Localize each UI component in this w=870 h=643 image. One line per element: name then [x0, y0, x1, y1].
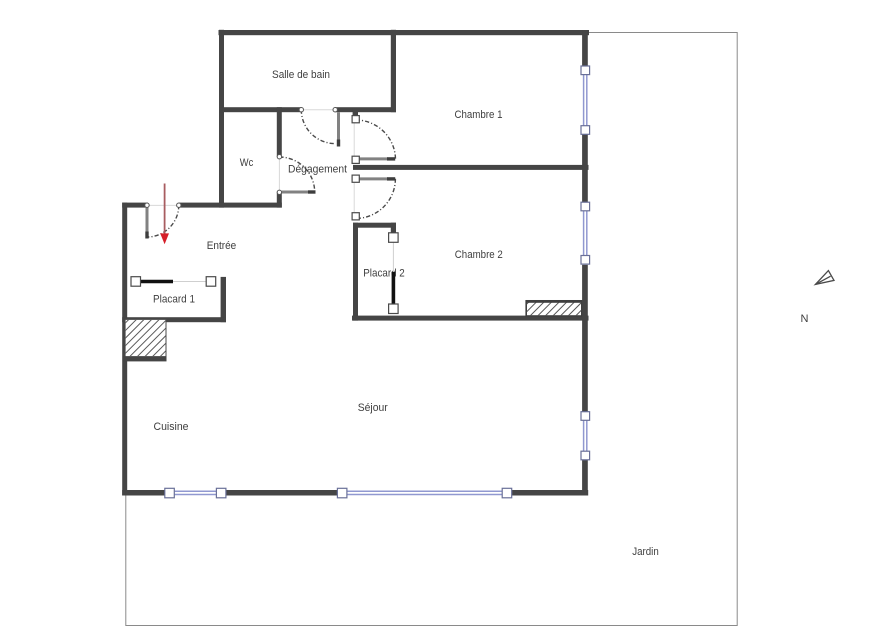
svg-text:Placard 1: Placard 1	[153, 294, 195, 306]
svg-text:N: N	[801, 313, 809, 325]
svg-text:Cuisine: Cuisine	[154, 421, 189, 433]
svg-text:Jardin: Jardin	[632, 546, 659, 558]
svg-text:Salle de bain: Salle de bain	[272, 69, 330, 81]
svg-text:Placard 2: Placard 2	[363, 268, 405, 280]
svg-text:Dégagement: Dégagement	[288, 164, 347, 176]
svg-text:Séjour: Séjour	[358, 402, 388, 414]
svg-text:Chambre 1: Chambre 1	[455, 109, 503, 121]
svg-text:Wc: Wc	[240, 157, 254, 169]
svg-text:Chambre 2: Chambre 2	[455, 249, 503, 261]
svg-text:Entrée: Entrée	[207, 240, 237, 252]
